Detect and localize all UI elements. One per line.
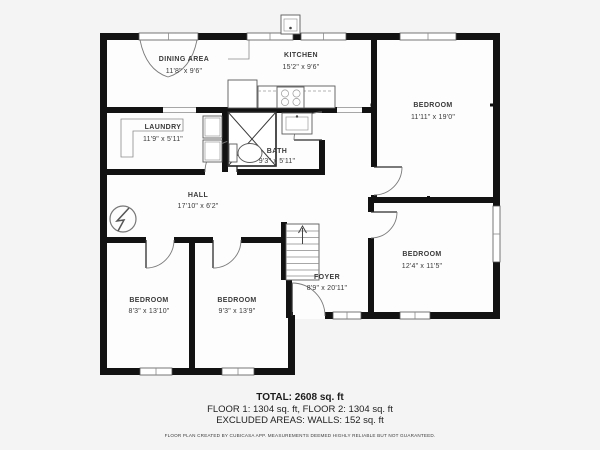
window	[493, 206, 500, 262]
room-label: HALL	[188, 192, 209, 199]
kitchen-sink-icon	[281, 15, 300, 34]
room-label: KITCHEN	[284, 52, 318, 59]
room-dimensions: 15'2" x 9'6"	[283, 64, 320, 71]
window	[400, 312, 430, 319]
window	[222, 368, 254, 375]
floor-areas-text: FLOOR 1: 1304 sq. ft, FLOOR 2: 1304 sq. …	[0, 404, 600, 415]
window	[140, 368, 172, 375]
room-dimensions: 12'4" x 11'5"	[402, 263, 443, 270]
toilet-icon	[229, 144, 262, 163]
floor-plan-canvas: DINING AREA 11'8" x 9'6" KITCHEN 15'2" x…	[0, 0, 600, 450]
room-label: BEDROOM	[402, 251, 441, 258]
room-label: DINING AREA	[159, 56, 209, 63]
room-label: FOYER	[314, 274, 340, 281]
room-label: LAUNDRY	[145, 124, 182, 131]
room-dimensions: 8'9" x 20'11"	[307, 285, 348, 292]
excluded-areas-text: EXCLUDED AREAS: WALLS: 152 sq. ft	[0, 415, 600, 426]
total-area-text: TOTAL: 2608 sq. ft	[0, 392, 600, 404]
window	[301, 33, 346, 40]
staircase	[286, 224, 319, 280]
room-label: BEDROOM	[217, 297, 256, 304]
room-dimensions: 9'3" x 5'11"	[259, 158, 296, 165]
floor-area	[100, 33, 500, 375]
disclaimer-text: FLOOR PLAN CREATED BY CUBICASA APP. MEAS…	[0, 433, 600, 438]
room-dimensions: 9'3" x 13'9"	[219, 308, 256, 315]
room-dimensions: 11'8" x 9'6"	[166, 68, 203, 75]
floor-plan: DINING AREA 11'8" x 9'6" KITCHEN 15'2" x…	[0, 0, 600, 450]
window	[333, 312, 361, 319]
washer-icon	[203, 116, 222, 138]
dryer-icon	[203, 140, 222, 162]
room-label: BEDROOM	[413, 102, 452, 109]
window	[400, 33, 456, 40]
area-summary: TOTAL: 2608 sq. ft FLOOR 1: 1304 sq. ft,…	[0, 392, 600, 438]
room-label: BEDROOM	[129, 297, 168, 304]
room-label: BATH	[267, 148, 288, 155]
stove-icon	[277, 87, 304, 108]
refrigerator-icon	[228, 80, 257, 108]
room-dimensions: 11'9" x 5'11"	[143, 136, 183, 143]
bathroom-sink-icon	[282, 113, 312, 134]
room-dimensions: 11'11" x 19'0"	[411, 114, 455, 121]
room-dimensions: 17'10" x 6'2"	[178, 203, 219, 210]
room-dimensions: 8'3" x 13'10"	[129, 308, 170, 315]
